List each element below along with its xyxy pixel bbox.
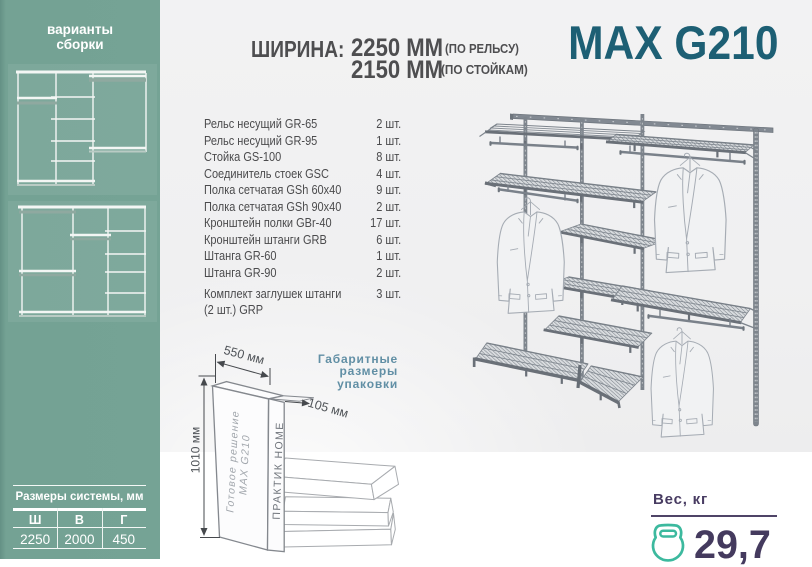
svg-text:105 мм: 105 мм (306, 396, 350, 421)
svg-text:1010 мм: 1010 мм (189, 427, 203, 474)
svg-text:550 мм: 550 мм (222, 345, 266, 367)
